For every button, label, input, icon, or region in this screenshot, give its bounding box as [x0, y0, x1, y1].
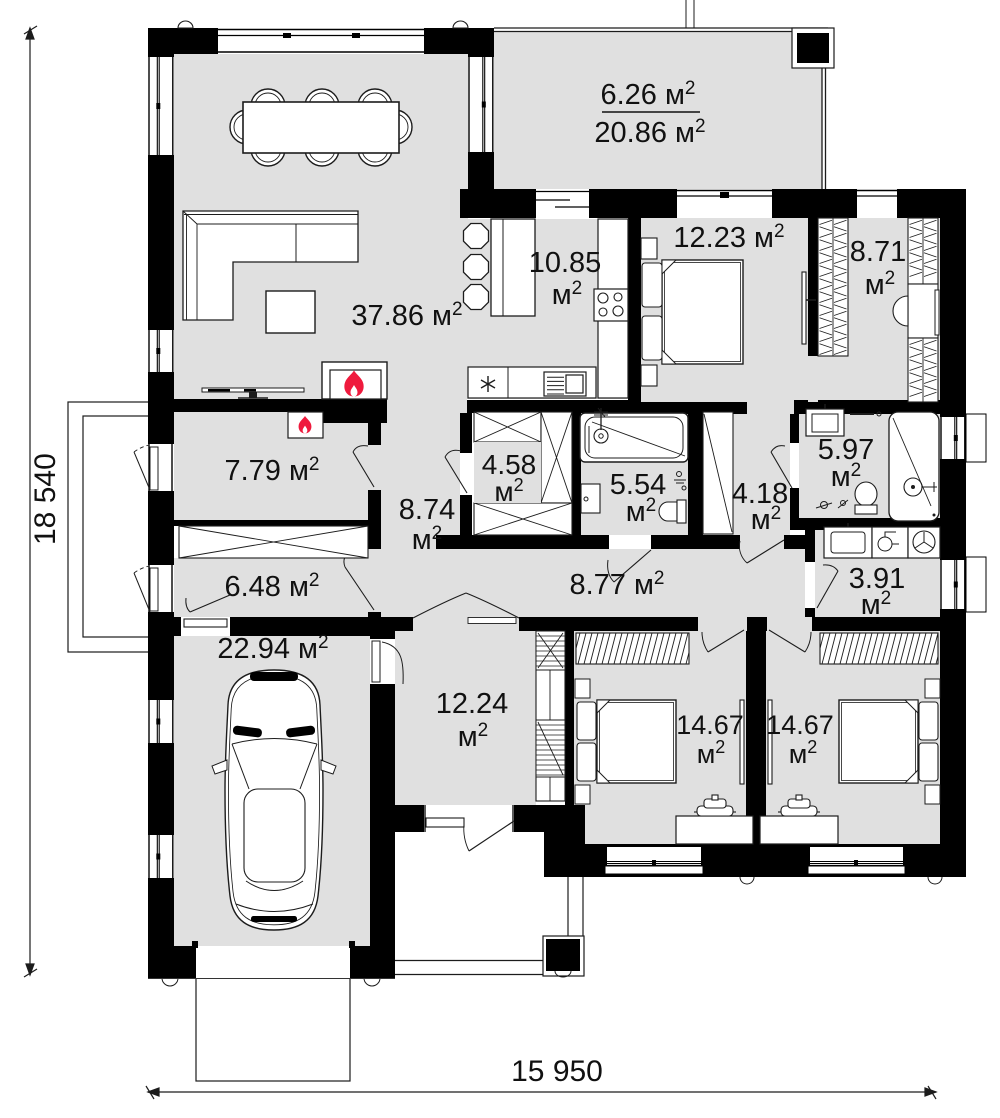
svg-text:6.26 м2: 6.26 м2	[600, 78, 695, 111]
svg-text:20.86 м2: 20.86 м2	[594, 116, 705, 149]
svg-text:12.23 м2: 12.23 м2	[673, 221, 784, 254]
svg-text:37.86 м2: 37.86 м2	[351, 299, 462, 332]
svg-text:8.74: 8.74	[399, 494, 455, 526]
svg-text:10.85: 10.85	[529, 247, 602, 279]
svg-text:8.77 м2: 8.77 м2	[569, 568, 664, 601]
svg-text:14.67: 14.67	[676, 710, 744, 740]
svg-text:18 540: 18 540	[29, 453, 62, 545]
svg-text:14.67: 14.67	[766, 710, 834, 740]
svg-text:7.79 м2: 7.79 м2	[224, 454, 319, 487]
svg-text:6.48 м2: 6.48 м2	[224, 570, 319, 603]
svg-text:8.71: 8.71	[850, 236, 906, 268]
svg-text:15 950: 15 950	[511, 1055, 603, 1088]
svg-text:22.94 м2: 22.94 м2	[217, 632, 328, 665]
svg-text:12.24: 12.24	[436, 688, 509, 720]
